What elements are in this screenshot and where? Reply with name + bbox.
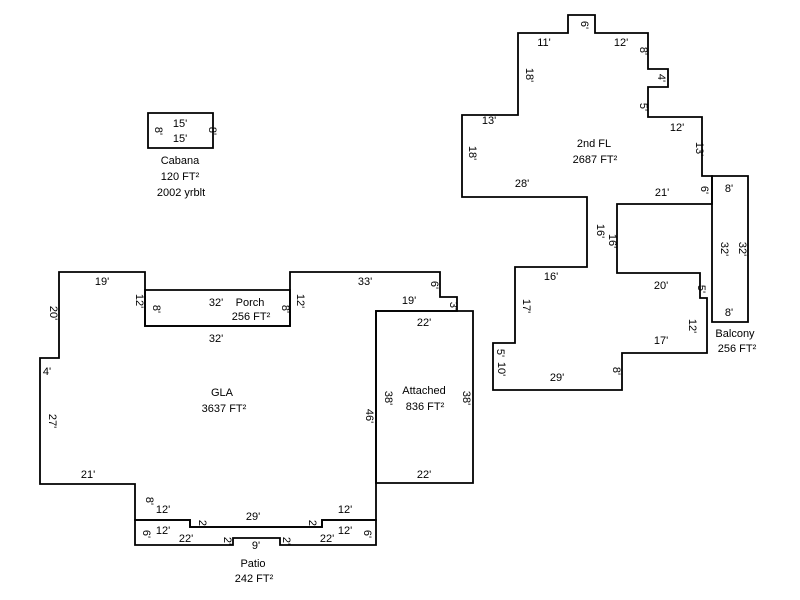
dim-label: 3' [447, 302, 459, 310]
dim-label: 32' [209, 333, 223, 345]
dim-label: 12' [338, 525, 352, 537]
dim-label: 10' [495, 362, 507, 376]
dim-label: 8' [143, 497, 155, 505]
dim-label: 29' [246, 511, 260, 523]
dim-label: 33' [358, 276, 372, 288]
dim-label: 2' [196, 520, 208, 528]
floor-plan-sketch: 15'8'8'15'Cabana120 FT²2002 yrblt11'6'12… [0, 0, 800, 600]
secondfl-name-label: 2nd FL [577, 138, 611, 150]
dim-label: 9' [252, 540, 260, 552]
dim-label: 2' [306, 520, 318, 528]
dim-label: 13' [482, 115, 496, 127]
dim-label: 12' [156, 504, 170, 516]
balcony-area-label: 256 FT² [718, 343, 757, 355]
dim-label: 8' [152, 127, 164, 135]
patio-area-label: 242 FT² [235, 573, 274, 585]
dim-label: 5' [494, 349, 506, 357]
dim-label: 16' [594, 224, 606, 238]
dim-label: 29' [550, 372, 564, 384]
dim-label: 4' [43, 366, 51, 378]
dim-label: 32' [718, 242, 730, 256]
attached-area-label: 836 FT² [406, 401, 445, 413]
dim-label: 12' [294, 294, 306, 308]
dim-label: 20' [47, 306, 59, 320]
dim-label: 8' [725, 183, 733, 195]
dim-label: 32' [736, 242, 748, 256]
dim-label: 8' [610, 367, 622, 375]
dim-label: 22' [320, 533, 334, 545]
dim-label: 18' [466, 146, 478, 160]
dim-label: 19' [95, 276, 109, 288]
dim-label: 38' [382, 391, 394, 405]
floor-plan-page: 15'8'8'15'Cabana120 FT²2002 yrblt11'6'12… [0, 0, 800, 600]
dim-label: 21' [81, 469, 95, 481]
cabana-yrblt-label: 2002 yrblt [157, 187, 205, 199]
dim-label: 16' [544, 271, 558, 283]
dim-label: 15' [173, 133, 187, 145]
second-floor-outline [462, 15, 712, 390]
dim-label: 17' [520, 299, 532, 313]
dim-label: 6' [698, 186, 710, 194]
dim-label: 22' [417, 469, 431, 481]
dim-label: 2' [221, 537, 233, 545]
dim-label: 12' [670, 122, 684, 134]
dim-label: 18' [523, 68, 535, 82]
dim-label: 27' [46, 414, 58, 428]
dim-label: 12' [686, 319, 698, 333]
dim-label: 28' [515, 178, 529, 190]
dim-label: 8' [725, 307, 733, 319]
dim-label: 8' [150, 305, 162, 313]
dim-label: 21' [655, 187, 669, 199]
dim-label: 6' [361, 530, 373, 538]
attached-name-label: Attached [402, 385, 445, 397]
dim-label: 46' [363, 409, 375, 423]
dim-label: 8' [637, 47, 649, 55]
cabana-name-label: Cabana [161, 155, 200, 167]
porch-area-label: 256 FT² [232, 311, 271, 323]
dim-label: 17' [654, 335, 668, 347]
dim-label: 6' [578, 21, 590, 29]
dim-label: 12' [133, 294, 145, 308]
dim-label: 6' [140, 530, 152, 538]
cabana-area-label: 120 FT² [161, 171, 200, 183]
dim-label: 32' [209, 297, 223, 309]
dim-label: 11' [537, 37, 551, 49]
porch-name-label: Porch [236, 297, 265, 309]
dim-label: 20' [654, 280, 668, 292]
dim-label: 12' [614, 37, 628, 49]
patio-name-label: Patio [240, 558, 265, 570]
gla-area-label: 3637 FT² [202, 403, 247, 415]
dim-label: 8' [279, 305, 291, 313]
dim-label: 12' [156, 525, 170, 537]
secondfl-area-label: 2687 FT² [573, 154, 618, 166]
balcony-name-label: Balcony [715, 328, 755, 340]
dim-label: 5' [695, 285, 707, 293]
dim-label: 15' [173, 118, 187, 130]
gla-name-label: GLA [211, 387, 234, 399]
dim-label: 4' [655, 74, 667, 82]
dim-label: 22' [417, 317, 431, 329]
dim-label: 19' [402, 295, 416, 307]
dim-label: 12' [338, 504, 352, 516]
dim-label: 2' [280, 537, 292, 545]
dim-label: 8' [206, 127, 218, 135]
dim-label: 5' [637, 103, 649, 111]
dim-label: 22' [179, 533, 193, 545]
dim-label: 16' [606, 234, 618, 248]
dim-label: 38' [460, 391, 472, 405]
dim-label: 13' [693, 142, 705, 156]
dim-label: 6' [428, 281, 440, 289]
